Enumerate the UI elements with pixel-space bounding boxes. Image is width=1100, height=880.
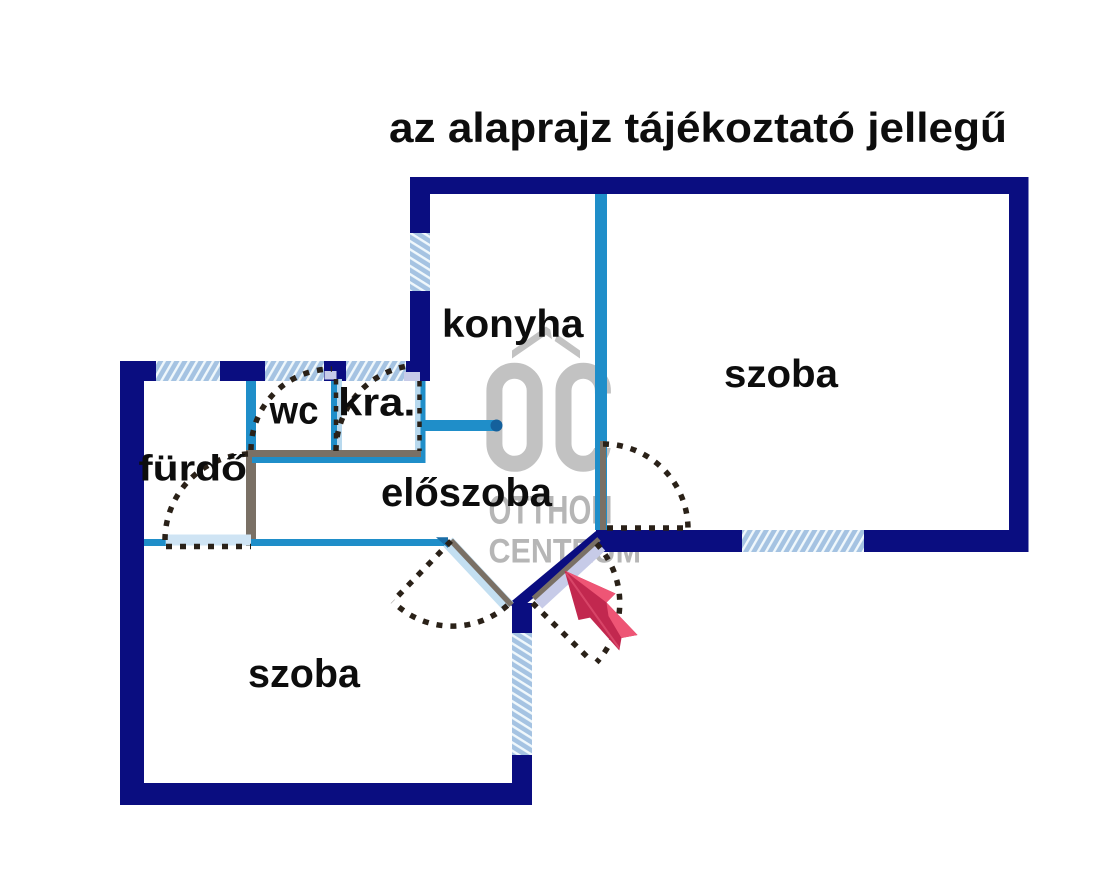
svg-text:wc: wc (269, 390, 319, 433)
svg-text:szoba: szoba (248, 652, 361, 696)
svg-text:konyha: konyha (442, 303, 584, 346)
svg-text:az alaprajz tájékoztató jelleg: az alaprajz tájékoztató jellegű (389, 104, 1007, 151)
svg-text:kra.: kra. (338, 382, 416, 425)
svg-text:előszoba: előszoba (381, 471, 553, 515)
svg-text:fürdő: fürdő (139, 448, 248, 489)
svg-text:szoba: szoba (724, 353, 838, 396)
